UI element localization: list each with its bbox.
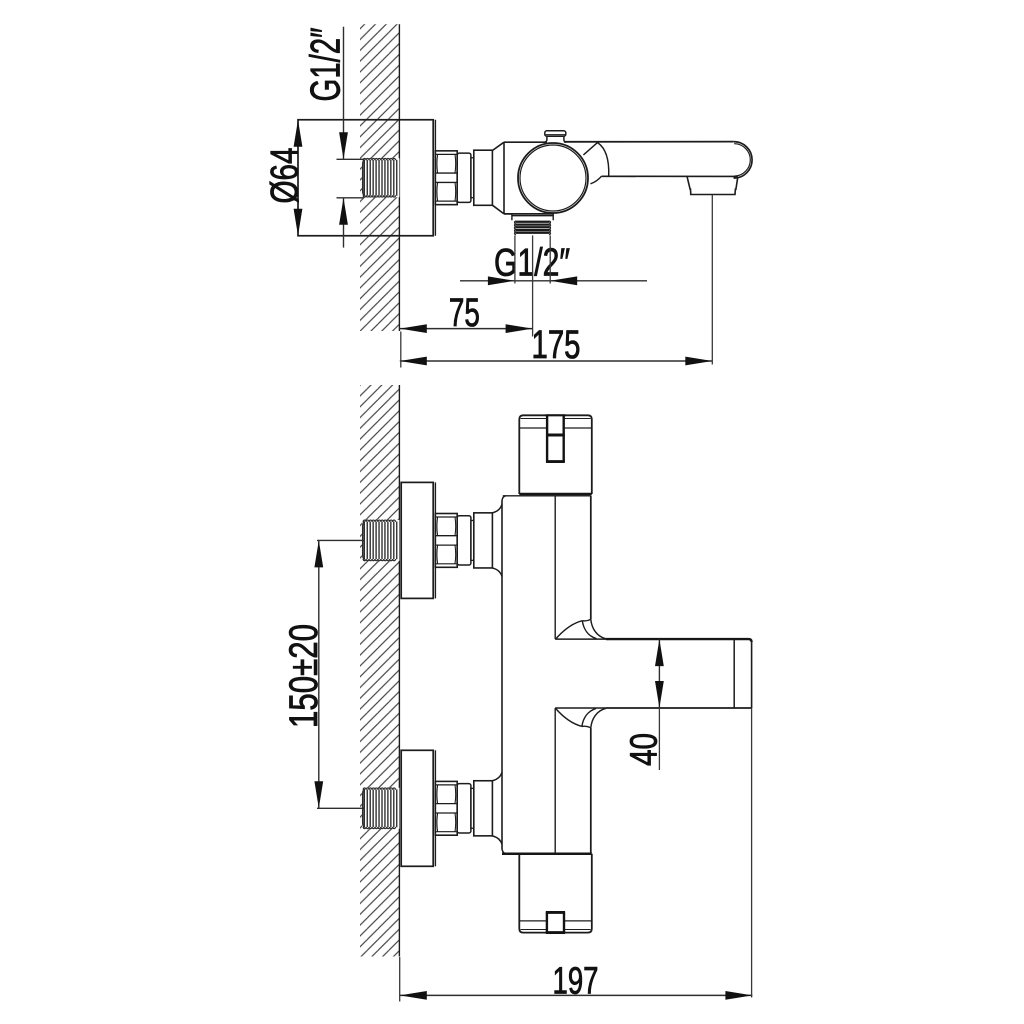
svg-text:Ø64: Ø64 [264,148,307,204]
svg-text:G1/2″: G1/2″ [302,27,349,101]
svg-text:175: 175 [532,323,581,367]
